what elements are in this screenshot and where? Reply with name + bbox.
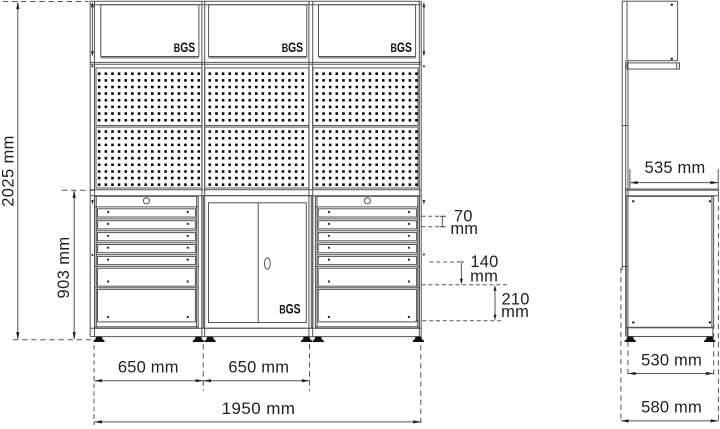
svg-text:530 mm: 530 mm [641, 351, 702, 369]
svg-text:GS: GS [397, 40, 412, 55]
svg-text:GS: GS [180, 40, 195, 55]
svg-text:mm: mm [470, 267, 498, 285]
svg-text:650 mm: 650 mm [228, 359, 289, 377]
svg-text:GS: GS [286, 301, 301, 316]
svg-text:2025 mm: 2025 mm [0, 135, 18, 207]
svg-text:580 mm: 580 mm [641, 398, 702, 416]
svg-text:650 mm: 650 mm [118, 359, 179, 377]
svg-text:1950 mm: 1950 mm [222, 399, 296, 418]
svg-text:mm: mm [501, 303, 529, 321]
svg-text:GS: GS [288, 40, 303, 55]
svg-text:535 mm: 535 mm [645, 159, 706, 177]
svg-text:mm: mm [450, 220, 478, 238]
svg-text:903 mm: 903 mm [55, 236, 73, 298]
